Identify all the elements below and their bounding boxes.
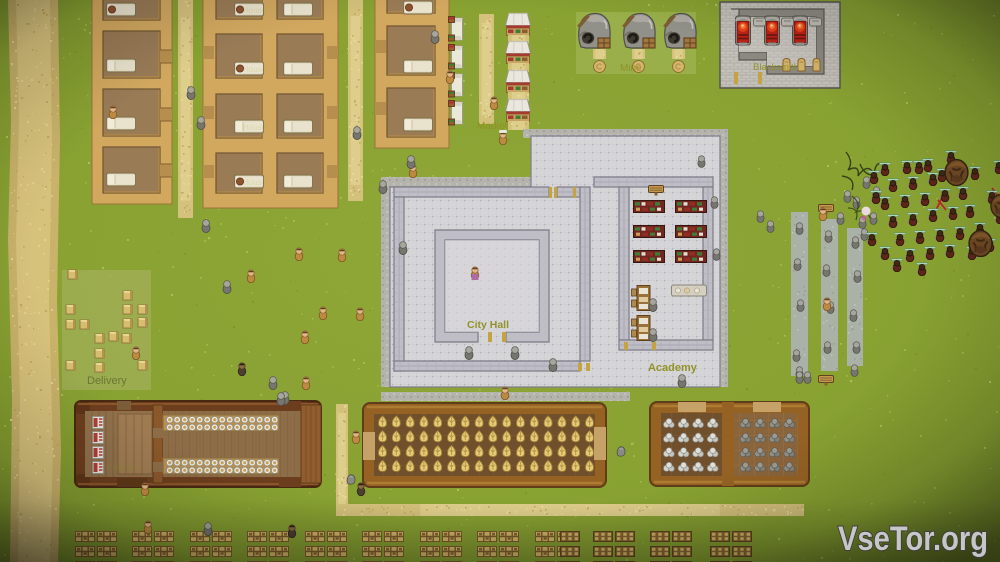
svg-text:VseTor.org: VseTor.org: [838, 520, 988, 558]
